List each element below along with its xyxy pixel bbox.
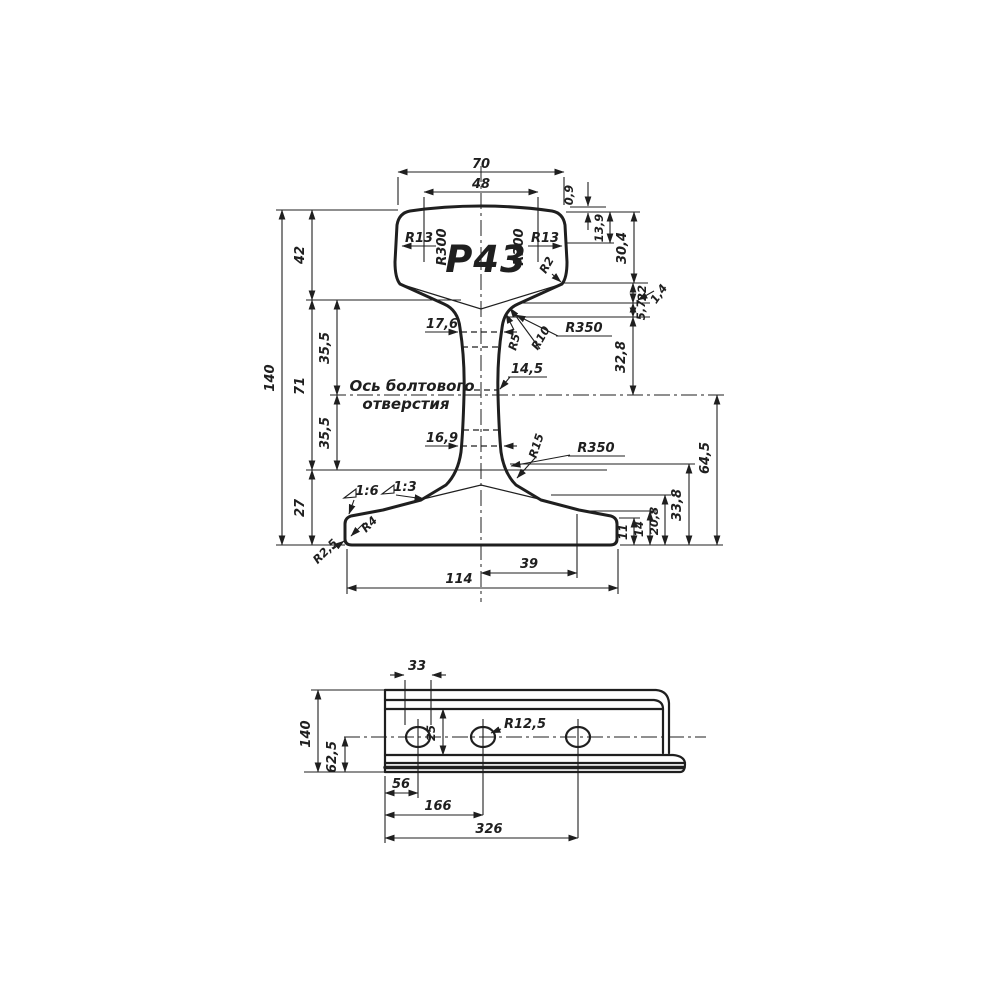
dim-foot-edge-11: 11 [616, 524, 630, 540]
technical-drawing: Р43 Ось болтового отверстия 70 48 0,9 13… [0, 0, 1000, 1000]
dim-web-bottom: 16,9 [426, 431, 458, 446]
dim-under-head-1-4: 1,4 [647, 281, 670, 306]
dim-crown-rise: 0,9 [562, 185, 576, 205]
dim-corner-radius-left: R13 [405, 231, 433, 246]
dim-foot-corner-radius: R4 [358, 513, 380, 535]
dim-crown-radius-right: R300 [512, 228, 527, 265]
dim-axis-below: 35,5 [318, 417, 333, 449]
dim-web-band-height: 25 [424, 725, 438, 741]
dim-foot-width: 114 [445, 572, 472, 587]
dim-head-top-flat: 48 [471, 177, 490, 192]
drawing-sheet: Р43 Ось болтового отверстия 70 48 0,9 13… [0, 0, 1000, 1000]
bolt-axis-note-line2: отверстия [362, 395, 449, 413]
dim-axis-above: 35,5 [318, 332, 333, 364]
dim-hole-radius: R12,5 [504, 717, 546, 732]
dim-corner-radius-right: R13 [531, 231, 559, 246]
dim-web-mid: 14,5 [511, 362, 543, 377]
dim-crown-radius-left: R300 [435, 228, 450, 265]
side-view: 140 62,5 33 25 R12,5 56 166 326 [299, 659, 706, 843]
dim-side-rail-height: 140 [299, 720, 314, 747]
dim-slope-inner: 1:3 [393, 480, 416, 495]
dim-axis-to-foot: 64,5 [698, 442, 713, 474]
dim-foot-rise-33-8: 33,8 [670, 489, 685, 521]
dim-foot-half: 39 [520, 557, 538, 572]
dim-hole-length: 33 [408, 659, 426, 674]
dim-head-zone: 42 [293, 246, 308, 265]
dim-foot-zone: 27 [293, 498, 308, 517]
dim-fillet-r15: R15 [526, 432, 547, 460]
dim-head-width: 70 [472, 157, 490, 172]
dim-hole2-offset: 166 [424, 799, 451, 814]
dim-fillet-r5: R5 [505, 332, 523, 352]
dim-web-top: 17,6 [426, 317, 458, 332]
dim-fillet-r10: R10 [528, 324, 553, 353]
side-extension-lines [304, 680, 431, 843]
dim-foot-edge-14: 14 [632, 521, 646, 537]
slope-wedge-icon [344, 489, 356, 498]
dim-fillet-r350-upper: R350 [565, 321, 602, 336]
dim-hole-axis-height: 62,5 [325, 741, 340, 773]
dim-hole3-offset: 326 [475, 822, 502, 837]
dim-hole1-offset: 56 [392, 777, 410, 792]
dim-web-zone: 71 [293, 377, 308, 395]
dim-foot-rise-20-8: 20,8 [647, 507, 661, 535]
slope-wedge-icon [382, 485, 394, 494]
dim-total-height: 140 [263, 364, 278, 391]
dim-fillet-r350-lower: R350 [577, 441, 614, 456]
dim-foot-edge-radius: R2,5 [310, 536, 341, 567]
cross-section-view: Р43 Ось болтового отверстия 70 48 0,9 13… [263, 157, 724, 602]
dim-head-height: 30,4 [615, 232, 630, 264]
rail-foot-top-line [385, 755, 685, 763]
dim-head-to-axis: 32,8 [614, 341, 629, 373]
dim-slope-outer: 1:6 [355, 484, 378, 499]
dim-under-head-5-7: 5,7 [634, 300, 648, 320]
dim-head-side-radius: R2 [536, 254, 557, 276]
bolt-axis-note-line1: Ось болтового [349, 377, 474, 395]
dim-head-depth: 13,9 [592, 214, 606, 242]
